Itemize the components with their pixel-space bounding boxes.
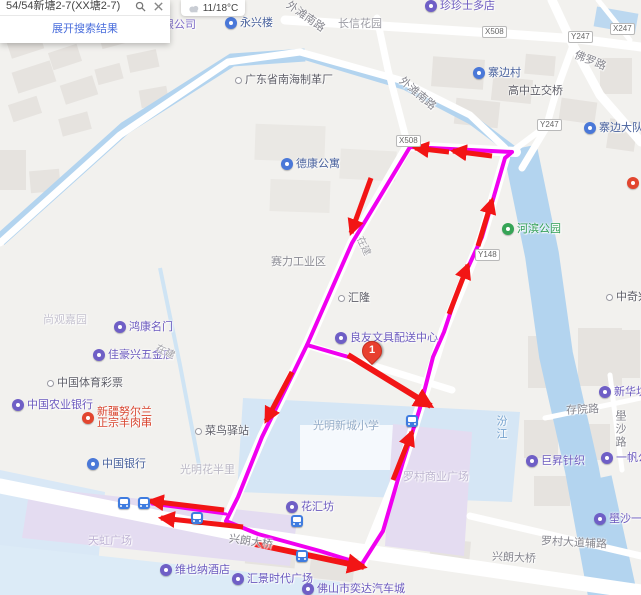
clear-search-icon[interactable] (153, 1, 164, 12)
expand-results-button[interactable]: 展开搜索结果 (0, 16, 170, 43)
search-icon[interactable] (135, 1, 146, 12)
route-line (307, 345, 352, 358)
weather-card: 11/18°C (181, 0, 245, 16)
search-query-text: 54/54新塘2-7(XX塘2-7) (6, 0, 120, 13)
search-panel: 54/54新塘2-7(XX塘2-7) 展开搜索结果 (0, 0, 170, 43)
search-input[interactable]: 54/54新塘2-7(XX塘2-7) (0, 0, 170, 16)
cloud-icon (188, 4, 200, 13)
map-canvas[interactable]: 珍珍士多店永兴楼寨边村寨边大队德康公寓河滨公园广东省南海制革厂汇隆良友文具配送中… (0, 0, 641, 595)
weather-temp: 11/18°C (203, 3, 239, 14)
map-base-layer (0, 0, 641, 595)
